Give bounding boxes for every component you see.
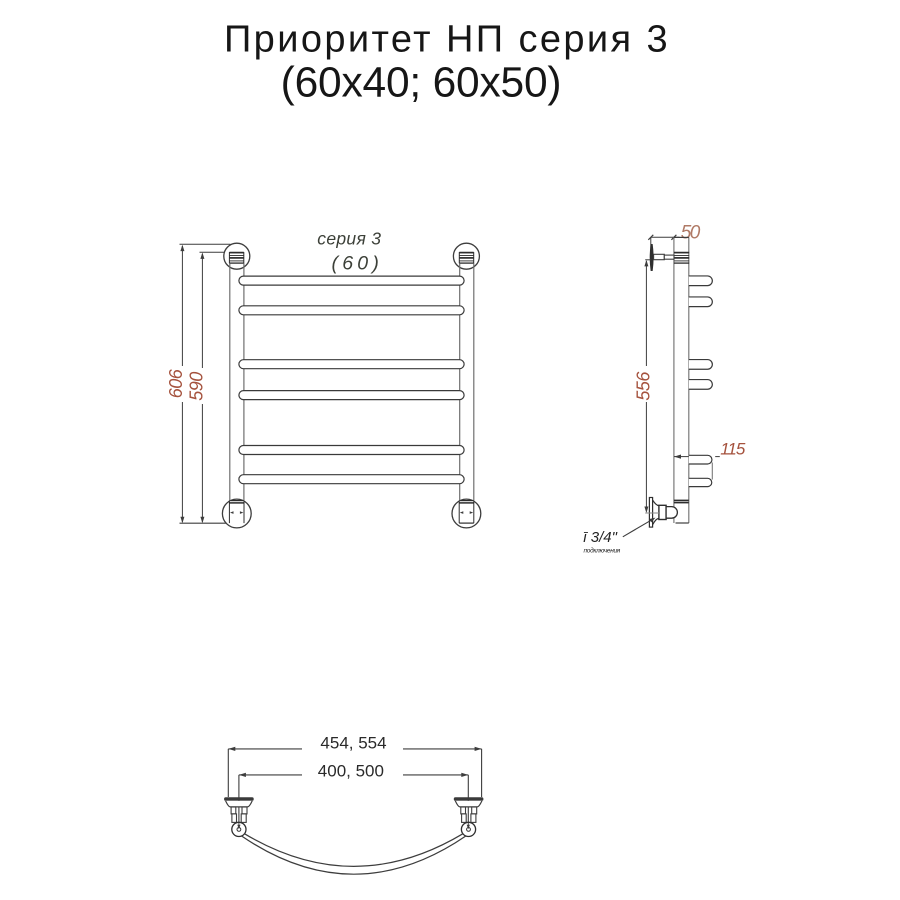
svg-text:подключения: подключения	[584, 547, 621, 555]
svg-text:606: 606	[166, 368, 186, 398]
svg-text:400, 500: 400, 500	[318, 761, 384, 780]
svg-text:590: 590	[187, 372, 207, 401]
svg-text:50: 50	[681, 222, 701, 243]
svg-text:(60x40; 60x50): (60x40; 60x50)	[281, 59, 562, 106]
svg-text:серия 3: серия 3	[317, 229, 381, 249]
svg-text:Приоритет НП серия 3: Приоритет НП серия 3	[224, 18, 670, 60]
svg-text:115: 115	[720, 440, 746, 459]
svg-text:454, 554: 454, 554	[320, 734, 386, 753]
svg-text:556: 556	[633, 371, 653, 401]
svg-text:(60): (60)	[332, 252, 383, 274]
svg-text:ī 3/4": ī 3/4"	[583, 529, 617, 546]
